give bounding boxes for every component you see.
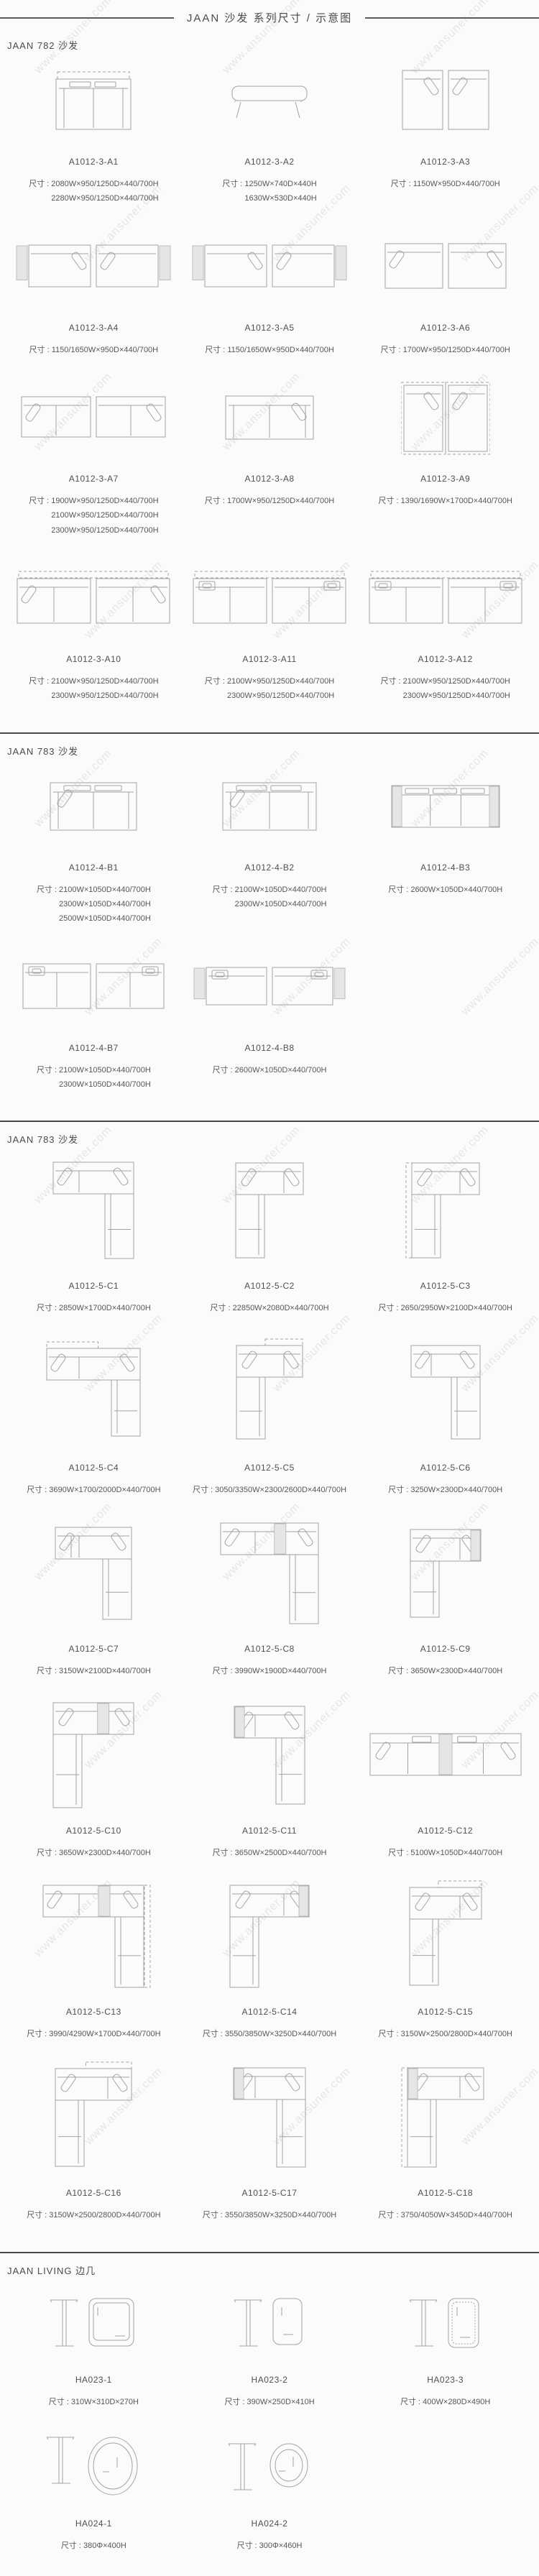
item-drawing xyxy=(6,1516,182,1631)
page-header: JAAN 沙发 系列尺寸 / 示意图 xyxy=(0,0,539,28)
dims-prefix: 尺寸 : xyxy=(205,674,227,704)
item-drawing xyxy=(357,59,533,144)
dims-prefix: 尺寸 : xyxy=(212,1063,234,1077)
dims-prefix: 尺寸 : xyxy=(378,2027,400,2041)
dims-prefix: 尺寸 : xyxy=(29,494,51,538)
dimension-line: 390W×250D×410H xyxy=(247,2395,314,2409)
item-drawing xyxy=(6,1698,182,1813)
catalog-item: HA024-2 尺寸 : 300Φ×460H xyxy=(182,2428,358,2553)
item-dimensions: 尺寸 : 2100W×950/1250D×440/700H2300W×950/1… xyxy=(29,674,158,704)
dims-lines: 1250W×740D×440H1630W×530D×440H xyxy=(244,177,316,206)
dimension-line: 3050/3350W×2300/2600D×440/700H xyxy=(215,1483,346,1497)
dimension-line: 2300W×1050D×440/700H xyxy=(59,1077,151,1092)
item-code: A1012-3-A10 xyxy=(66,654,121,664)
catalog-item: A1012-5-C10 尺寸 : 3650W×2300D×440/700H xyxy=(6,1698,182,1860)
item-code: A1012-5-C9 xyxy=(420,1644,471,1654)
dims-lines: 2650/2950W×2100D×440/700H xyxy=(401,1301,512,1315)
item-dimensions: 尺寸 : 3990/4290W×1700D×440/700H xyxy=(27,2027,161,2041)
catalog-item: A1012-4-B8 尺寸 : 2600W×1050D×440/700H xyxy=(182,945,358,1092)
item-drawing xyxy=(357,225,533,310)
item-drawing xyxy=(357,765,533,850)
item-dimensions: 尺寸 : 1900W×950/1250D×440/700H2100W×950/1… xyxy=(29,494,158,538)
dimension-line: 1630W×530D×440H xyxy=(244,191,316,206)
catalog-item: A1012-5-C11 尺寸 : 3650W×2500D×440/700H xyxy=(182,1698,358,1860)
dims-lines: 1150/1650W×950D×440/700H xyxy=(52,343,158,357)
dims-prefix: 尺寸 : xyxy=(378,494,400,508)
catalog-item: A1012-4-B3 尺寸 : 2600W×1050D×440/700H xyxy=(357,765,533,926)
dimension-line: 3750/4050W×3450D×440/700H xyxy=(401,2208,512,2222)
dims-prefix: 尺寸 : xyxy=(378,2208,400,2222)
item-code: A1012-3-A9 xyxy=(420,474,470,484)
dims-lines: 2600W×1050D×440/700H xyxy=(410,883,502,897)
catalog-item: A1012-3-A12 尺寸 : 2100W×950/1250D×440/700… xyxy=(357,556,533,704)
dimension-line: 3990W×1900D×440/700H xyxy=(235,1664,327,1678)
dims-lines: 3650W×2300D×440/700H xyxy=(410,1664,502,1678)
item-drawing xyxy=(182,2060,358,2175)
section-grid: HA023-1 尺寸 : 310W×310D×270H HA023-2 尺寸 :… xyxy=(6,2284,533,2572)
item-code: A1012-5-C7 xyxy=(68,1644,119,1654)
item-dimensions: 尺寸 : 3690W×1700/2000D×440/700H xyxy=(27,1483,161,1497)
item-dimensions: 尺寸 : 3650W×2300D×440/700H xyxy=(388,1664,502,1678)
item-dimensions: 尺寸 : 390W×250D×410H xyxy=(224,2395,314,2409)
dimension-line: 310W×310D×270H xyxy=(71,2395,139,2409)
item-drawing xyxy=(6,1153,182,1268)
page-title: JAAN 沙发 系列尺寸 / 示意图 xyxy=(174,10,365,25)
dims-prefix: 尺寸 : xyxy=(29,177,51,206)
item-drawing xyxy=(6,1879,182,1994)
item-drawing xyxy=(182,225,358,310)
dims-lines: 380Φ×400H xyxy=(83,2539,126,2553)
catalog-item: A1012-5-C14 尺寸 : 3550/3850W×3250D×440/70… xyxy=(182,1879,358,2041)
dims-lines: 3150W×2100D×440/700H xyxy=(59,1664,151,1678)
dims-prefix: 尺寸 : xyxy=(49,2395,71,2409)
catalog-item: A1012-5-C16 尺寸 : 3150W×2500/2800D×440/70… xyxy=(6,2060,182,2222)
item-drawing xyxy=(6,376,182,461)
catalog-item: A1012-3-A10 尺寸 : 2100W×950/1250D×440/700… xyxy=(6,556,182,704)
dimension-line: 2300W×950/1250D×440/700H xyxy=(51,689,158,703)
dimension-line: 1150W×950D×440/700H xyxy=(413,177,500,191)
catalog-item: A1012-5-C5 尺寸 : 3050/3350W×2300/2600D×44… xyxy=(182,1335,358,1497)
dims-lines: 2100W×950/1250D×440/700H2300W×950/1250D×… xyxy=(403,674,510,704)
item-drawing xyxy=(6,2284,182,2362)
dimension-line: 2080W×950/1250D×440/700H xyxy=(51,177,158,191)
dimension-line: 3150W×2100D×440/700H xyxy=(59,1664,151,1678)
item-drawing xyxy=(182,2428,358,2506)
dims-lines: 390W×250D×410H xyxy=(247,2395,314,2409)
item-code: A1012-5-C18 xyxy=(418,2188,473,2198)
dimension-line: 2600W×1050D×440/700H xyxy=(410,883,502,897)
dims-prefix: 尺寸 : xyxy=(29,674,51,704)
dims-lines: 2600W×1050D×440/700H xyxy=(235,1063,327,1077)
dims-prefix: 尺寸 : xyxy=(37,1846,59,1860)
item-dimensions: 尺寸 : 2100W×1050D×440/700H2300W×1050D×440… xyxy=(212,883,326,912)
item-code: A1012-4-B8 xyxy=(244,1043,294,1053)
dims-lines: 2100W×1050D×440/700H2300W×1050D×440/700H xyxy=(235,883,327,912)
dims-lines: 3990/4290W×1700D×440/700H xyxy=(49,2027,160,2041)
dims-prefix: 尺寸 : xyxy=(203,2027,225,2041)
item-code: A1012-3-A5 xyxy=(244,323,294,333)
dims-prefix: 尺寸 : xyxy=(212,883,234,912)
item-drawing xyxy=(357,376,533,461)
title-rule-left xyxy=(0,17,174,19)
dimension-line: 3690W×1700/2000D×440/700H xyxy=(49,1483,160,1497)
section-title: JAAN LIVING 边几 xyxy=(6,2253,533,2284)
section: JAAN 783 沙发 A1012-5-C1 尺寸 : 2850W×1700D×… xyxy=(0,1121,539,2245)
item-dimensions: 尺寸 : 1250W×740D×440H1630W×530D×440H xyxy=(222,177,316,206)
item-dimensions: 尺寸 : 2600W×1050D×440/700H xyxy=(212,1063,326,1077)
dimension-line: 2300W×1050D×440/700H xyxy=(235,897,327,911)
item-drawing xyxy=(6,556,182,641)
item-drawing xyxy=(357,1879,533,1994)
dims-lines: 310W×310D×270H xyxy=(71,2395,139,2409)
section: JAAN 782 沙发 A1012-3-A1 尺寸 : 2080W×950/12… xyxy=(0,28,539,727)
item-code: HA023-3 xyxy=(427,2375,464,2385)
item-drawing xyxy=(182,1879,358,1994)
item-dimensions: 尺寸 : 2100W×1050D×440/700H2300W×1050D×440… xyxy=(37,1063,151,1092)
dimension-line: 22850W×2080D×440/700H xyxy=(233,1301,329,1315)
item-code: A1012-5-C5 xyxy=(244,1463,295,1473)
item-code: A1012-5-C12 xyxy=(418,1826,473,1836)
catalog-item: A1012-3-A7 尺寸 : 1900W×950/1250D×440/700H… xyxy=(6,376,182,538)
section-title: JAAN 782 沙发 xyxy=(6,28,533,59)
dimension-line: 2300W×1050D×440/700H xyxy=(59,897,151,911)
dims-lines: 3150W×2500/2800D×440/700H xyxy=(49,2208,160,2222)
section-title: JAAN 783 沙发 xyxy=(6,1122,533,1153)
dimension-line: 380Φ×400H xyxy=(83,2539,126,2553)
item-dimensions: 尺寸 : 3750/4050W×3450D×440/700H xyxy=(378,2208,512,2222)
section-title: JAAN 783 沙发 xyxy=(6,734,533,765)
dims-prefix: 尺寸 : xyxy=(27,1483,49,1497)
sections-container: JAAN 782 沙发 A1012-3-A1 尺寸 : 2080W×950/12… xyxy=(0,28,539,2576)
dims-lines: 3650W×2300D×440/700H xyxy=(59,1846,151,1860)
item-code: A1012-5-C11 xyxy=(242,1826,297,1836)
dims-prefix: 尺寸 : xyxy=(205,343,227,357)
dims-prefix: 尺寸 : xyxy=(210,1301,232,1315)
item-code: A1012-4-B2 xyxy=(244,862,294,873)
item-drawing xyxy=(6,945,182,1030)
dimension-line: 300Φ×460H xyxy=(259,2539,303,2553)
dims-lines: 3750/4050W×3450D×440/700H xyxy=(401,2208,512,2222)
dims-prefix: 尺寸 : xyxy=(27,2208,49,2222)
item-code: A1012-3-A2 xyxy=(244,157,294,167)
item-dimensions: 尺寸 : 2650/2950W×2100D×440/700H xyxy=(378,1301,512,1315)
dims-prefix: 尺寸 : xyxy=(212,1664,234,1678)
item-dimensions: 尺寸 : 3050/3350W×2300/2600D×440/700H xyxy=(193,1483,346,1497)
catalog-item: A1012-5-C1 尺寸 : 2850W×1700D×440/700H xyxy=(6,1153,182,1315)
dims-prefix: 尺寸 : xyxy=(37,1063,59,1092)
dims-lines: 22850W×2080D×440/700H xyxy=(233,1301,329,1315)
item-drawing xyxy=(357,1335,533,1450)
title-rule-right xyxy=(365,17,539,19)
item-drawing xyxy=(6,2428,182,2506)
item-code: A1012-4-B3 xyxy=(420,862,470,873)
catalog-item: A1012-5-C15 尺寸 : 3150W×2500/2800D×440/70… xyxy=(357,1879,533,2041)
item-dimensions: 尺寸 : 2080W×950/1250D×440/700H2280W×950/1… xyxy=(29,177,158,206)
catalog-item: A1012-5-C9 尺寸 : 3650W×2300D×440/700H xyxy=(357,1516,533,1678)
catalog-item: A1012-3-A8 尺寸 : 1700W×950/1250D×440/700H xyxy=(182,376,358,538)
item-drawing xyxy=(357,556,533,641)
item-code: A1012-5-C3 xyxy=(420,1281,471,1291)
dims-prefix: 尺寸 : xyxy=(37,883,59,926)
item-code: A1012-3-A7 xyxy=(69,474,119,484)
dimension-line: 2650/2950W×2100D×440/700H xyxy=(401,1301,512,1315)
dims-lines: 2100W×950/1250D×440/700H2300W×950/1250D×… xyxy=(227,674,334,704)
dimension-line: 3150W×2500/2800D×440/700H xyxy=(401,2027,512,2041)
dims-prefix: 尺寸 : xyxy=(388,883,410,897)
dims-lines: 3990W×1900D×440/700H xyxy=(235,1664,327,1678)
catalog-item: HA023-1 尺寸 : 310W×310D×270H xyxy=(6,2284,182,2409)
dims-prefix: 尺寸 : xyxy=(61,2539,83,2553)
item-drawing xyxy=(357,1698,533,1813)
dims-prefix: 尺寸 : xyxy=(388,1664,410,1678)
item-code: HA023-2 xyxy=(252,2375,288,2385)
dimension-line: 3650W×2300D×440/700H xyxy=(410,1664,502,1678)
item-drawing xyxy=(182,765,358,850)
item-drawing xyxy=(182,945,358,1030)
dimension-line: 2300W×950/1250D×440/700H xyxy=(227,689,334,703)
item-drawing xyxy=(182,2284,358,2362)
item-code: A1012-4-B1 xyxy=(69,862,119,873)
section-grid: A1012-4-B1 尺寸 : 2100W×1050D×440/700H2300… xyxy=(6,765,533,1111)
catalog-item: A1012-5-C12 尺寸 : 5100W×1050D×440/700H xyxy=(357,1698,533,1860)
dimension-line: 3550/3850W×3250D×440/700H xyxy=(225,2208,336,2222)
dims-lines: 1700W×950/1250D×440/700H xyxy=(403,343,510,357)
dims-lines: 1700W×950/1250D×440/700H xyxy=(227,494,334,508)
dimension-line: 400W×280D×490H xyxy=(423,2395,490,2409)
item-code: A1012-5-C13 xyxy=(66,2007,121,2017)
dimension-line: 2100W×950/1250D×440/700H xyxy=(227,674,334,689)
dims-prefix: 尺寸 : xyxy=(203,2208,225,2222)
dims-lines: 3250W×2300D×440/700H xyxy=(410,1483,502,1497)
item-drawing xyxy=(6,59,182,144)
item-dimensions: 尺寸 : 1150W×950D×440/700H xyxy=(391,177,500,191)
dimension-line: 2100W×950/1250D×440/700H xyxy=(403,674,510,689)
catalog-item: A1012-5-C18 尺寸 : 3750/4050W×3450D×440/70… xyxy=(357,2060,533,2222)
dims-prefix: 尺寸 : xyxy=(400,2395,423,2409)
item-code: HA024-1 xyxy=(75,2518,112,2529)
dims-prefix: 尺寸 : xyxy=(29,343,52,357)
item-code: HA023-1 xyxy=(75,2375,112,2385)
dimension-line: 1900W×950/1250D×440/700H xyxy=(51,494,158,508)
dims-lines: 3550/3850W×3250D×440/700H xyxy=(225,2027,336,2041)
item-code: A1012-5-C10 xyxy=(66,1826,121,1836)
dims-prefix: 尺寸 : xyxy=(27,2027,49,2041)
dims-lines: 2850W×1700D×440/700H xyxy=(59,1301,151,1315)
item-drawing xyxy=(182,556,358,641)
dimension-line: 3250W×2300D×440/700H xyxy=(410,1483,502,1497)
catalog-item: A1012-5-C7 尺寸 : 3150W×2100D×440/700H xyxy=(6,1516,182,1678)
dimension-line: 1150/1650W×950D×440/700H xyxy=(227,343,333,357)
dimension-line: 3650W×2300D×440/700H xyxy=(59,1846,151,1860)
catalog-item: A1012-3-A11 尺寸 : 2100W×950/1250D×440/700… xyxy=(182,556,358,704)
item-dimensions: 尺寸 : 2100W×950/1250D×440/700H2300W×950/1… xyxy=(380,674,510,704)
dims-lines: 2080W×950/1250D×440/700H2280W×950/1250D×… xyxy=(51,177,158,206)
item-dimensions: 尺寸 : 3650W×2500D×440/700H xyxy=(212,1846,326,1860)
dimension-line: 1390/1690W×1700D×440/700H xyxy=(401,494,512,508)
item-drawing xyxy=(357,2060,533,2175)
dims-lines: 3690W×1700/2000D×440/700H xyxy=(49,1483,160,1497)
dimension-line: 1150/1650W×950D×440/700H xyxy=(52,343,158,357)
dimension-line: 2300W×950/1250D×440/700H xyxy=(51,523,158,538)
dimension-line: 1700W×950/1250D×440/700H xyxy=(403,343,510,357)
item-drawing xyxy=(6,2060,182,2175)
dims-prefix: 尺寸 : xyxy=(37,1301,59,1315)
catalog-item: A1012-3-A6 尺寸 : 1700W×950/1250D×440/700H xyxy=(357,225,533,357)
dimension-line: 2100W×1050D×440/700H xyxy=(59,883,151,897)
dims-prefix: 尺寸 : xyxy=(388,1846,410,1860)
item-code: A1012-4-B7 xyxy=(69,1043,119,1053)
catalog-item: A1012-5-C3 尺寸 : 2650/2950W×2100D×440/700… xyxy=(357,1153,533,1315)
item-dimensions: 尺寸 : 1150/1650W×950D×440/700H xyxy=(205,343,334,357)
dims-lines: 3650W×2500D×440/700H xyxy=(235,1846,327,1860)
section-grid: A1012-3-A1 尺寸 : 2080W×950/1250D×440/700H… xyxy=(6,59,533,722)
item-dimensions: 尺寸 : 3550/3850W×3250D×440/700H xyxy=(203,2027,337,2041)
catalog-item: A1012-5-C4 尺寸 : 3690W×1700/2000D×440/700… xyxy=(6,1335,182,1497)
dimension-line: 3150W×2500/2800D×440/700H xyxy=(49,2208,160,2222)
dims-prefix: 尺寸 : xyxy=(236,2539,259,2553)
item-dimensions: 尺寸 : 1700W×950/1250D×440/700H xyxy=(205,494,334,508)
catalog-item: A1012-5-C6 尺寸 : 3250W×2300D×440/700H xyxy=(357,1335,533,1497)
item-code: A1012-5-C15 xyxy=(418,2007,473,2017)
dimension-line: 2500W×1050D×440/700H xyxy=(59,911,151,926)
dims-prefix: 尺寸 : xyxy=(378,1301,400,1315)
catalog-item: A1012-5-C8 尺寸 : 3990W×1900D×440/700H xyxy=(182,1516,358,1678)
dimension-line: 3550/3850W×3250D×440/700H xyxy=(225,2027,336,2041)
item-dimensions: 尺寸 : 1390/1690W×1700D×440/700H xyxy=(378,494,512,508)
item-drawing xyxy=(6,765,182,850)
item-dimensions: 尺寸 : 1700W×950/1250D×440/700H xyxy=(380,343,510,357)
catalog-item: A1012-5-C13 尺寸 : 3990/4290W×1700D×440/70… xyxy=(6,1879,182,2041)
section: JAAN 783 沙发 A1012-4-B1 尺寸 : 2100W×1050D×… xyxy=(0,732,539,1115)
catalog-item: A1012-5-C17 尺寸 : 3550/3850W×3250D×440/70… xyxy=(182,2060,358,2222)
item-dimensions: 尺寸 : 3250W×2300D×440/700H xyxy=(388,1483,502,1497)
catalog-item: A1012-4-B1 尺寸 : 2100W×1050D×440/700H2300… xyxy=(6,765,182,926)
item-dimensions: 尺寸 : 3650W×2300D×440/700H xyxy=(37,1846,151,1860)
dimension-line: 2100W×1050D×440/700H xyxy=(59,1063,151,1077)
item-code: A1012-3-A4 xyxy=(69,323,119,333)
item-drawing xyxy=(182,1698,358,1813)
item-dimensions: 尺寸 : 1150/1650W×950D×440/700H xyxy=(29,343,159,357)
dimension-line: 5100W×1050D×440/700H xyxy=(410,1846,502,1860)
catalog-page: JAAN 沙发 系列尺寸 / 示意图 JAAN 782 沙发 A1012-3-A… xyxy=(0,0,539,2576)
catalog-item: A1012-3-A9 尺寸 : 1390/1690W×1700D×440/700… xyxy=(357,376,533,538)
section-grid: A1012-5-C1 尺寸 : 2850W×1700D×440/700H A10… xyxy=(6,1153,533,2241)
dimension-line: 2300W×950/1250D×440/700H xyxy=(403,689,510,703)
item-dimensions: 尺寸 : 5100W×1050D×440/700H xyxy=(388,1846,502,1860)
item-code: A1012-5-C16 xyxy=(66,2188,121,2198)
dims-lines: 3150W×2500/2800D×440/700H xyxy=(401,2027,512,2041)
dimension-line: 2100W×950/1250D×440/700H xyxy=(51,674,158,689)
dims-lines: 5100W×1050D×440/700H xyxy=(410,1846,502,1860)
item-dimensions: 尺寸 : 3150W×2100D×440/700H xyxy=(37,1664,151,1678)
dims-lines: 2100W×950/1250D×440/700H2300W×950/1250D×… xyxy=(51,674,158,704)
item-code: A1012-3-A8 xyxy=(244,474,294,484)
dims-prefix: 尺寸 : xyxy=(380,674,402,704)
dims-lines: 400W×280D×490H xyxy=(423,2395,490,2409)
item-drawing xyxy=(357,1153,533,1268)
item-dimensions: 尺寸 : 2100W×1050D×440/700H2300W×1050D×440… xyxy=(37,883,151,926)
catalog-item: HA023-2 尺寸 : 390W×250D×410H xyxy=(182,2284,358,2409)
item-code: A1012-3-A6 xyxy=(420,323,470,333)
item-code: HA024-2 xyxy=(252,2518,288,2529)
item-code: A1012-5-C2 xyxy=(244,1281,295,1291)
dimension-line: 2850W×1700D×440/700H xyxy=(59,1301,151,1315)
catalog-item: A1012-3-A3 尺寸 : 1150W×950D×440/700H xyxy=(357,59,533,206)
dims-prefix: 尺寸 : xyxy=(205,494,227,508)
item-dimensions: 尺寸 : 380Φ×400H xyxy=(61,2539,126,2553)
catalog-item: HA023-3 尺寸 : 400W×280D×490H xyxy=(357,2284,533,2409)
dimension-line: 1700W×950/1250D×440/700H xyxy=(227,494,334,508)
item-drawing xyxy=(182,1153,358,1268)
item-dimensions: 尺寸 : 3990W×1900D×440/700H xyxy=(212,1664,326,1678)
dims-prefix: 尺寸 : xyxy=(37,1664,59,1678)
dims-lines: 2100W×1050D×440/700H2300W×1050D×440/700H xyxy=(59,1063,151,1092)
item-dimensions: 尺寸 : 2100W×950/1250D×440/700H2300W×950/1… xyxy=(205,674,334,704)
dims-lines: 2100W×1050D×440/700H2300W×1050D×440/700H… xyxy=(59,883,151,926)
catalog-item: A1012-3-A4 尺寸 : 1150/1650W×950D×440/700H xyxy=(6,225,182,357)
item-drawing xyxy=(6,225,182,310)
item-code: A1012-5-C1 xyxy=(68,1281,119,1291)
dims-prefix: 尺寸 : xyxy=(391,177,413,191)
item-dimensions: 尺寸 : 310W×310D×270H xyxy=(49,2395,139,2409)
dimension-line: 1250W×740D×440H xyxy=(244,177,316,191)
item-code: A1012-3-A12 xyxy=(418,654,473,664)
item-code: A1012-5-C6 xyxy=(420,1463,471,1473)
item-code: A1012-3-A1 xyxy=(69,157,119,167)
item-drawing xyxy=(182,1516,358,1631)
item-dimensions: 尺寸 : 3150W×2500/2800D×440/700H xyxy=(27,2208,161,2222)
item-dimensions: 尺寸 : 400W×280D×490H xyxy=(400,2395,490,2409)
item-dimensions: 尺寸 : 300Φ×460H xyxy=(236,2539,302,2553)
dimension-line: 2280W×950/1250D×440/700H xyxy=(51,191,158,206)
catalog-item: A1012-5-C2 尺寸 : 22850W×2080D×440/700H xyxy=(182,1153,358,1315)
item-code: A1012-5-C17 xyxy=(242,2188,298,2198)
dims-lines: 3550/3850W×3250D×440/700H xyxy=(225,2208,336,2222)
catalog-item: A1012-4-B7 尺寸 : 2100W×1050D×440/700H2300… xyxy=(6,945,182,1092)
dims-prefix: 尺寸 : xyxy=(388,1483,410,1497)
item-dimensions: 尺寸 : 2850W×1700D×440/700H xyxy=(37,1301,151,1315)
dims-lines: 1390/1690W×1700D×440/700H xyxy=(401,494,512,508)
dimension-line: 3650W×2500D×440/700H xyxy=(235,1846,327,1860)
item-dimensions: 尺寸 : 3150W×2500/2800D×440/700H xyxy=(378,2027,512,2041)
dims-lines: 3050/3350W×2300/2600D×440/700H xyxy=(215,1483,346,1497)
catalog-item: A1012-4-B2 尺寸 : 2100W×1050D×440/700H2300… xyxy=(182,765,358,926)
item-code: A1012-3-A3 xyxy=(420,157,470,167)
dimension-line: 2100W×1050D×440/700H xyxy=(235,883,327,897)
dims-prefix: 尺寸 : xyxy=(380,343,402,357)
item-dimensions: 尺寸 : 3550/3850W×3250D×440/700H xyxy=(203,2208,337,2222)
dims-prefix: 尺寸 : xyxy=(193,1483,215,1497)
dims-prefix: 尺寸 : xyxy=(212,1846,234,1860)
item-code: A1012-3-A11 xyxy=(242,654,296,664)
dims-prefix: 尺寸 : xyxy=(222,177,244,206)
item-dimensions: 尺寸 : 22850W×2080D×440/700H xyxy=(210,1301,328,1315)
item-drawing xyxy=(357,2284,533,2362)
item-drawing xyxy=(182,376,358,461)
dims-lines: 1150W×950D×440/700H xyxy=(413,177,500,191)
dims-prefix: 尺寸 : xyxy=(224,2395,247,2409)
dims-lines: 300Φ×460H xyxy=(259,2539,303,2553)
catalog-item: A1012-3-A5 尺寸 : 1150/1650W×950D×440/700H xyxy=(182,225,358,357)
dims-lines: 1150/1650W×950D×440/700H xyxy=(227,343,333,357)
dims-lines: 1900W×950/1250D×440/700H2100W×950/1250D×… xyxy=(51,494,158,538)
item-code: A1012-5-C8 xyxy=(244,1644,295,1654)
item-code: A1012-5-C4 xyxy=(68,1463,119,1473)
item-dimensions: 尺寸 : 2600W×1050D×440/700H xyxy=(388,883,502,897)
item-code: A1012-5-C14 xyxy=(242,2007,298,2017)
item-drawing xyxy=(182,59,358,144)
item-drawing xyxy=(182,1335,358,1450)
